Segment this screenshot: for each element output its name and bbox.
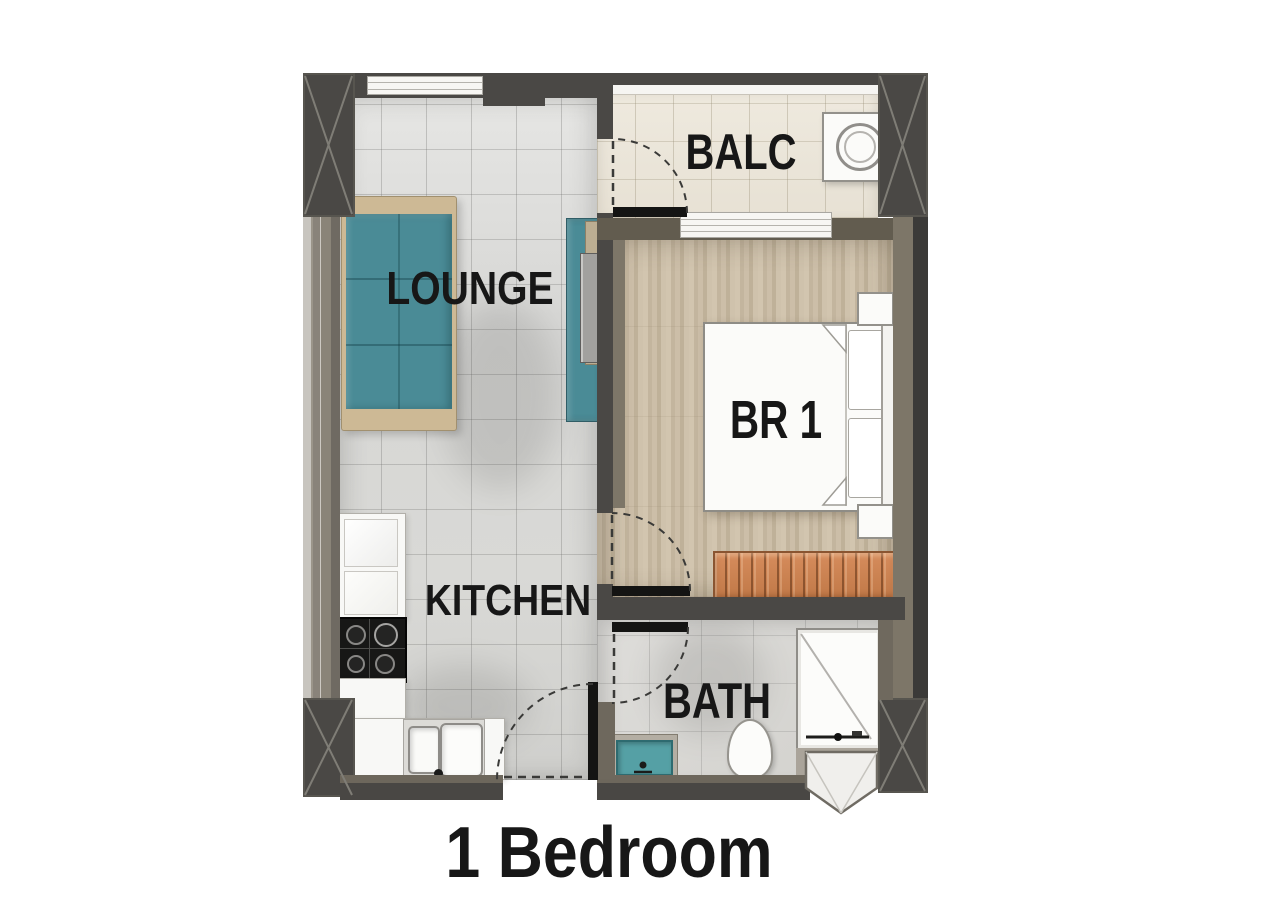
plan-title: 1 Bedroom <box>445 812 772 894</box>
shower-faucet-icon <box>806 731 869 741</box>
column-x-icon <box>305 76 925 795</box>
corner-shelf <box>806 752 877 813</box>
room-label-bedroom: BR 1 <box>730 389 822 451</box>
floor-plan-canvas: LOUNGE BALC BR 1 KITCHEN BATH 1 Bedroom <box>0 0 1280 900</box>
shower-diagonal <box>801 634 871 739</box>
room-label-kitchen: KITCHEN <box>425 576 591 626</box>
bed-fold-icon <box>823 325 846 505</box>
door-swing-arc <box>497 139 690 780</box>
room-label-lounge: LOUNGE <box>386 261 553 315</box>
room-label-balcony: BALC <box>685 123 796 181</box>
door-opening-dash <box>504 141 614 777</box>
room-label-bath: BATH <box>663 672 771 730</box>
plan-linework-overlay <box>0 0 1280 900</box>
vanity-faucet-icon <box>634 762 652 773</box>
